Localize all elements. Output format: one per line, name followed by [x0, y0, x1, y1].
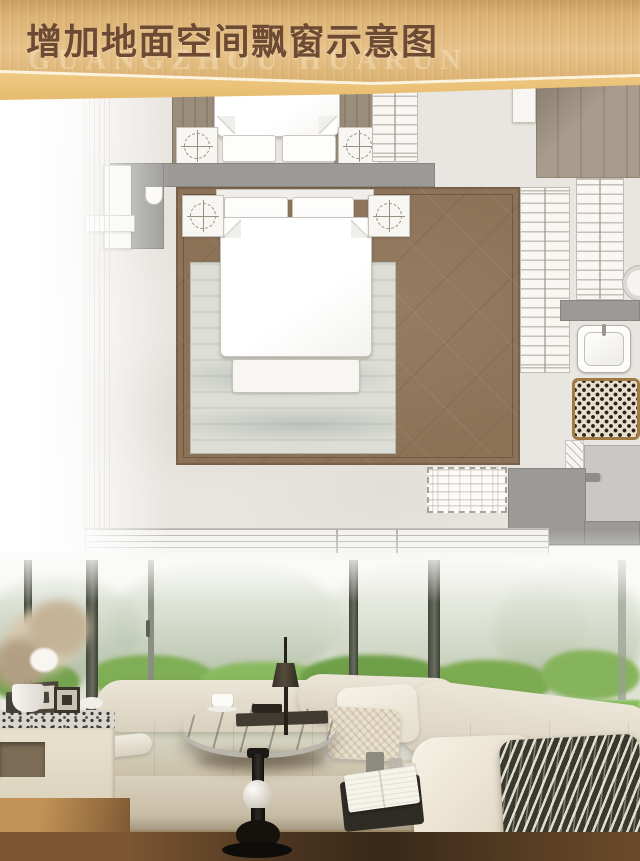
nightstand [368, 195, 410, 237]
floor-plan [0, 75, 640, 560]
shower-knob [585, 473, 600, 482]
basin [584, 332, 624, 366]
decor-bowl [80, 697, 103, 709]
cabinet-shelf [0, 742, 45, 777]
page-title: 增加地面空间飘窗示意图 [26, 13, 439, 65]
flower-vase [12, 684, 44, 712]
double-bed [220, 217, 372, 357]
lamp-symbol [376, 203, 402, 229]
floor-shadow [0, 832, 640, 861]
sheet-fold [319, 116, 337, 134]
wardrobe-hangers [576, 178, 624, 300]
plan-photo-blend [0, 553, 640, 603]
faucet [602, 324, 606, 336]
wash-basin [577, 325, 631, 373]
title-banner: GUANGZHOU HUARUN 增加地面空间飘窗示意图 [0, 0, 640, 110]
sheet-fold [217, 116, 235, 134]
photo-frame [54, 687, 80, 713]
upper-bed-pillow [282, 135, 336, 162]
nightstand [182, 195, 224, 237]
lamp-symbol [190, 203, 216, 229]
window-handle [146, 620, 150, 637]
mosaic-bath-mat [572, 378, 640, 440]
bed-bench [232, 359, 360, 393]
white-flower [30, 648, 58, 672]
lamp-stem [284, 687, 288, 735]
lamp-symbol [184, 133, 210, 159]
upper-bed-pillow [222, 135, 276, 162]
table-base [222, 842, 292, 858]
lamp-finial [284, 637, 287, 667]
sheet-fold [223, 220, 241, 238]
table-sphere [243, 780, 272, 811]
lamp-symbol [346, 133, 372, 159]
sheet-fold [351, 220, 369, 238]
textured-pillow [327, 706, 402, 762]
wall-bath [560, 300, 640, 321]
left-fade [0, 75, 180, 560]
shower-floor [584, 445, 640, 523]
page: GUANGZHOU HUARUN 增加地面空间飘窗示意图 [0, 0, 640, 861]
saucer [207, 706, 237, 712]
wardrobe-hangers [520, 187, 570, 373]
dashed-cabinet [427, 467, 507, 513]
tray-item [252, 704, 282, 713]
upper-nightstand [176, 127, 218, 165]
